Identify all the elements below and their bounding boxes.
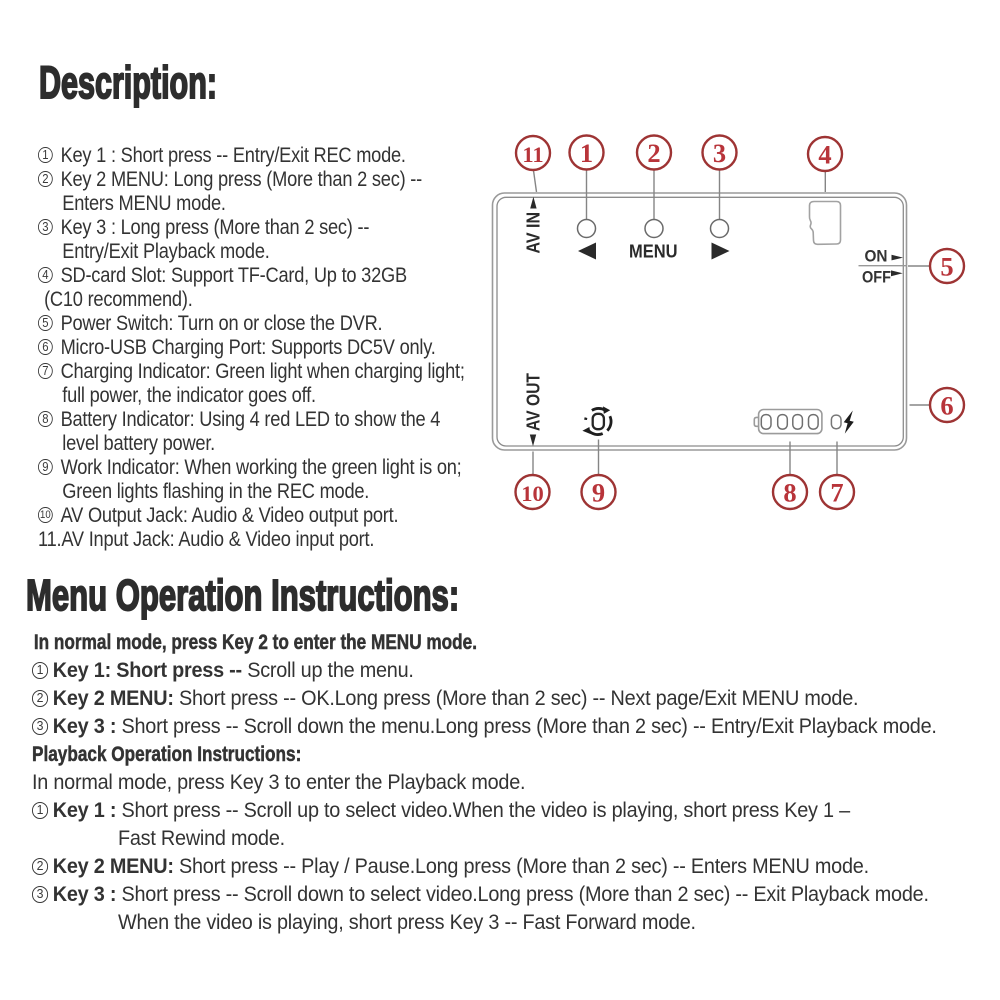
svg-text:AV OUT: AV OUT: [524, 373, 544, 431]
svg-text:ON: ON: [865, 248, 888, 266]
svg-text:6: 6: [940, 391, 953, 421]
svg-text:11: 11: [522, 142, 543, 167]
svg-text:AV IN: AV IN: [524, 212, 544, 254]
svg-text:5: 5: [940, 252, 953, 282]
svg-text:3: 3: [713, 138, 726, 168]
svg-text:9: 9: [592, 478, 605, 508]
svg-text:7: 7: [830, 478, 843, 508]
svg-text:1: 1: [580, 138, 593, 168]
svg-text:4: 4: [818, 140, 831, 170]
svg-text:8: 8: [783, 478, 796, 508]
svg-text:OFF: OFF: [862, 269, 891, 287]
svg-text:2: 2: [647, 138, 660, 168]
svg-text:MENU: MENU: [629, 242, 678, 262]
svg-text:10: 10: [521, 481, 544, 506]
